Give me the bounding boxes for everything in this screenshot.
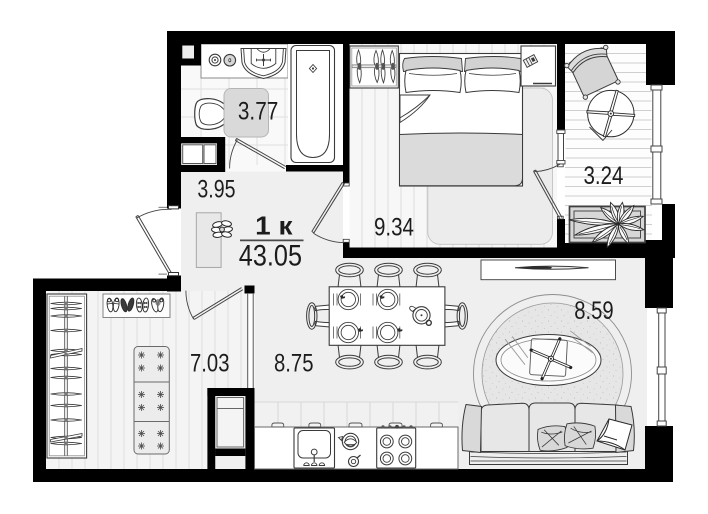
svg-text:9.34: 9.34 xyxy=(374,214,414,242)
svg-text:7.03: 7.03 xyxy=(190,349,230,377)
svg-text:3.24: 3.24 xyxy=(584,162,624,190)
svg-text:1 к: 1 к xyxy=(255,211,293,241)
svg-text:3.95: 3.95 xyxy=(197,176,235,204)
svg-text:8.75: 8.75 xyxy=(274,349,314,377)
svg-text:3.77: 3.77 xyxy=(238,97,278,125)
svg-text:8.59: 8.59 xyxy=(574,297,613,325)
svg-text:43.05: 43.05 xyxy=(239,240,302,273)
